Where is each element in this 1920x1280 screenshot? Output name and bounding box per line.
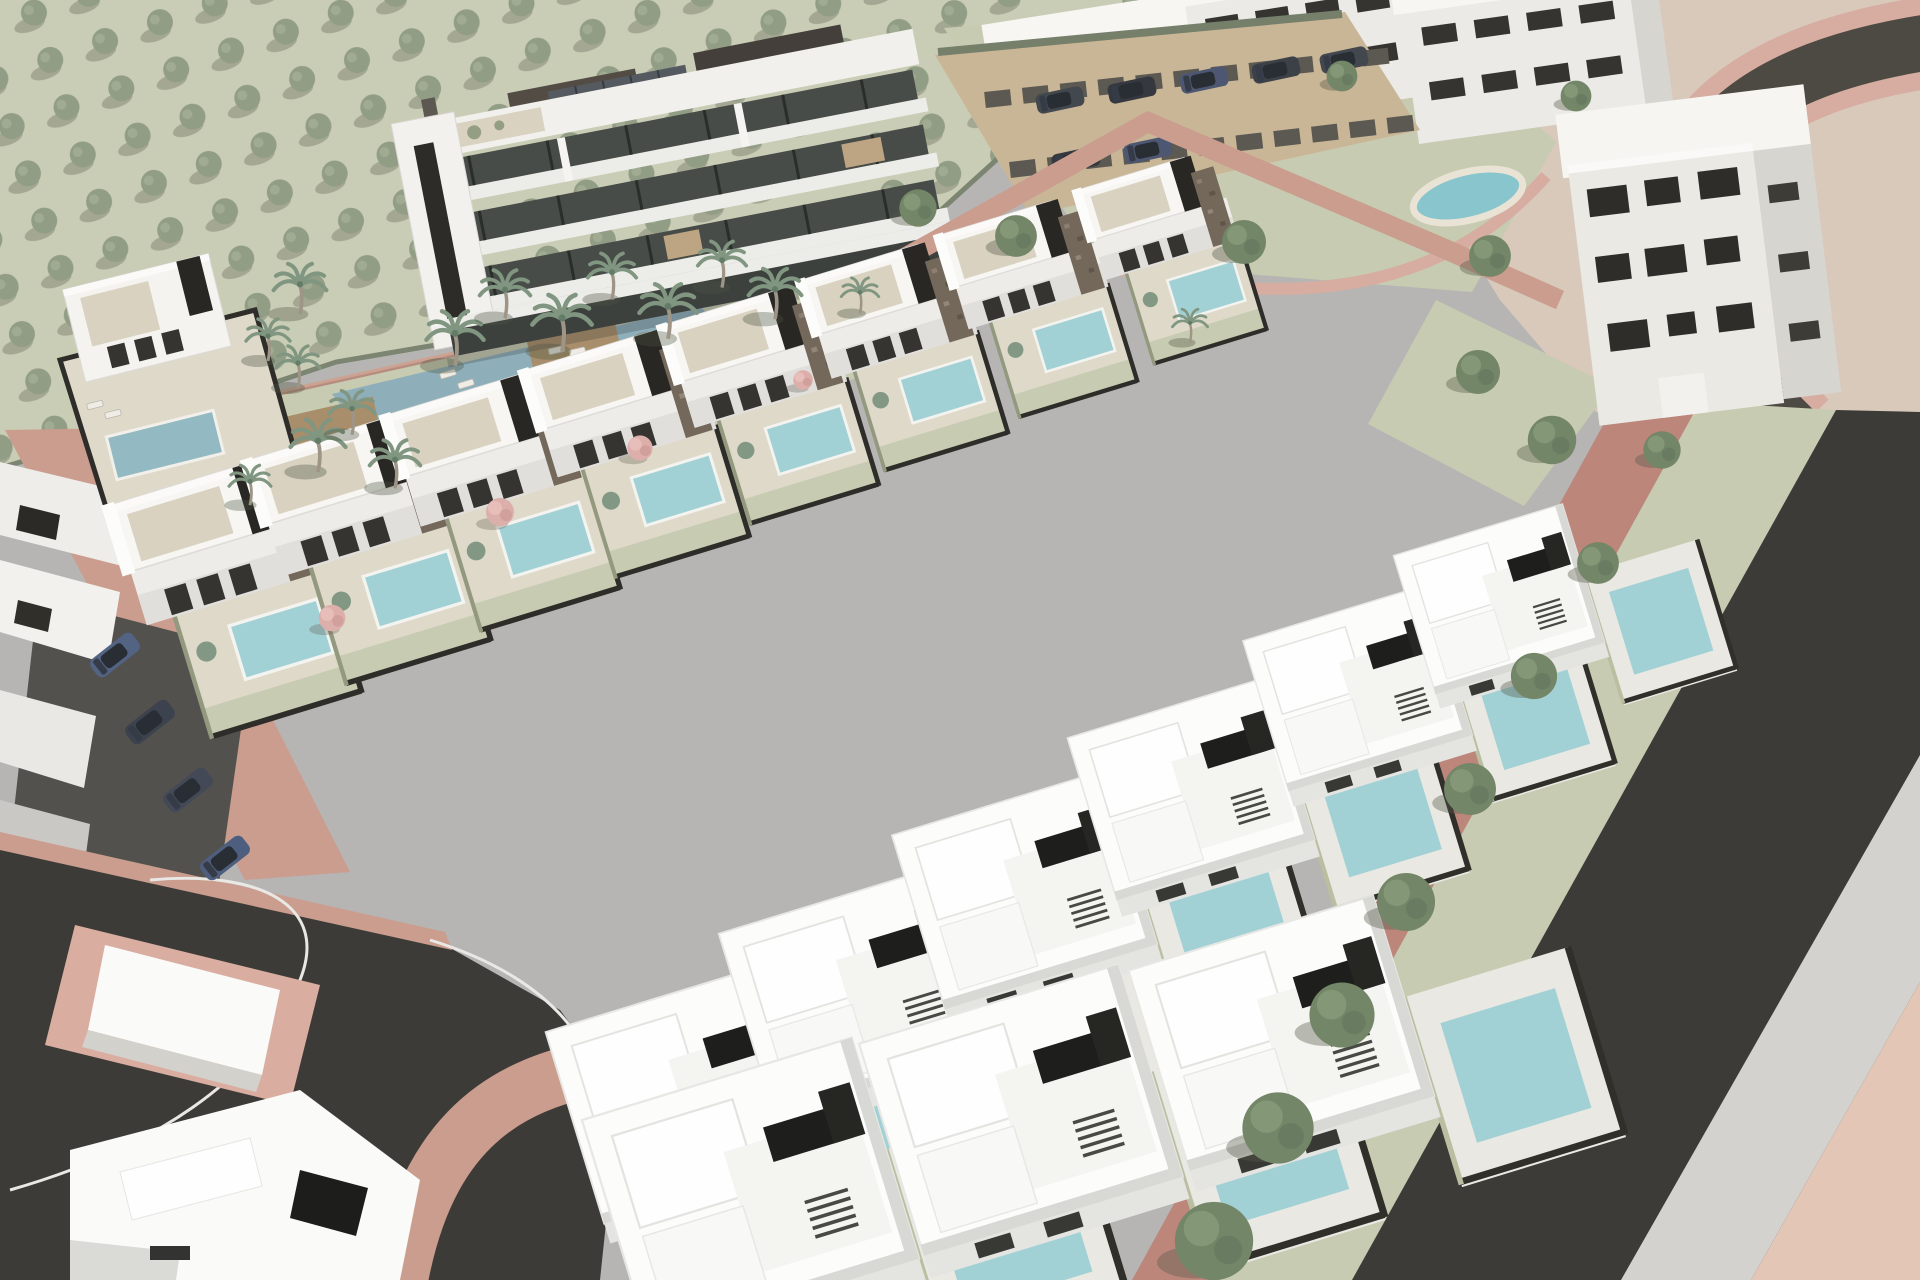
render-haze (0, 0, 1920, 1280)
render-canvas (0, 0, 1920, 1280)
aerial-render (0, 0, 1920, 1280)
